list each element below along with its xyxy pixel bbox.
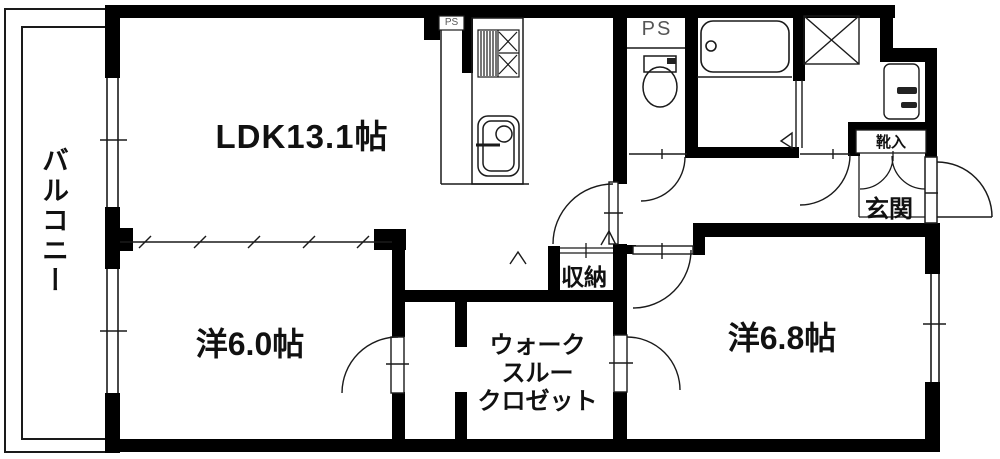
walk-through-closet-label: ウォーク スルー クロゼット	[460, 332, 615, 416]
storage-opening	[560, 243, 613, 258]
pipe-space-toilet-label: PS	[629, 18, 685, 41]
walk-through-closet-label-line1: ウォーク	[460, 332, 615, 360]
window-room60-balcony	[100, 269, 127, 393]
toilet-icon	[643, 56, 677, 107]
stove-icon	[478, 30, 519, 77]
window-room68-east	[923, 274, 946, 382]
toilet-door-opening	[629, 149, 687, 201]
walk-through-closet-label-line3: クロゼット	[460, 388, 615, 416]
ldk-label: LDK13.1帖	[206, 110, 398, 158]
partition-track	[120, 236, 392, 248]
washroom-door-opening	[800, 149, 850, 205]
entrance-label: 玄関	[856, 189, 922, 224]
bath-door	[781, 80, 802, 148]
kitchen-counter	[441, 18, 529, 184]
vanity-basin-icon	[884, 64, 919, 119]
walk-through-closet-label-line2: スルー	[460, 360, 615, 388]
closet-room68-door	[609, 335, 680, 392]
washing-machine-pan-icon	[804, 16, 859, 64]
bathtub-icon	[697, 21, 792, 77]
shoe-cabinet-doors	[860, 151, 925, 189]
shoe-cabinet-label: 靴入	[856, 131, 926, 152]
floorplan: バルコニー LDK13.1帖 洋6.0帖 洋6.8帖 ウォーク スルー クロゼッ…	[0, 0, 1000, 459]
hall-room68-door	[633, 243, 693, 308]
window-ldk-balcony	[100, 78, 127, 207]
storage-label: 収納	[552, 258, 616, 292]
balcony-label: バルコニー	[34, 136, 73, 306]
ldk-hall-door	[510, 182, 623, 264]
pipe-space-kitchen-label: PS	[439, 16, 464, 30]
kitchen-sink-icon	[476, 116, 519, 176]
western-room-large-label: 洋6.8帖	[712, 313, 852, 359]
entrance-door	[925, 157, 992, 223]
room60-door	[342, 337, 409, 393]
western-room-small-label: 洋6.0帖	[183, 319, 317, 365]
